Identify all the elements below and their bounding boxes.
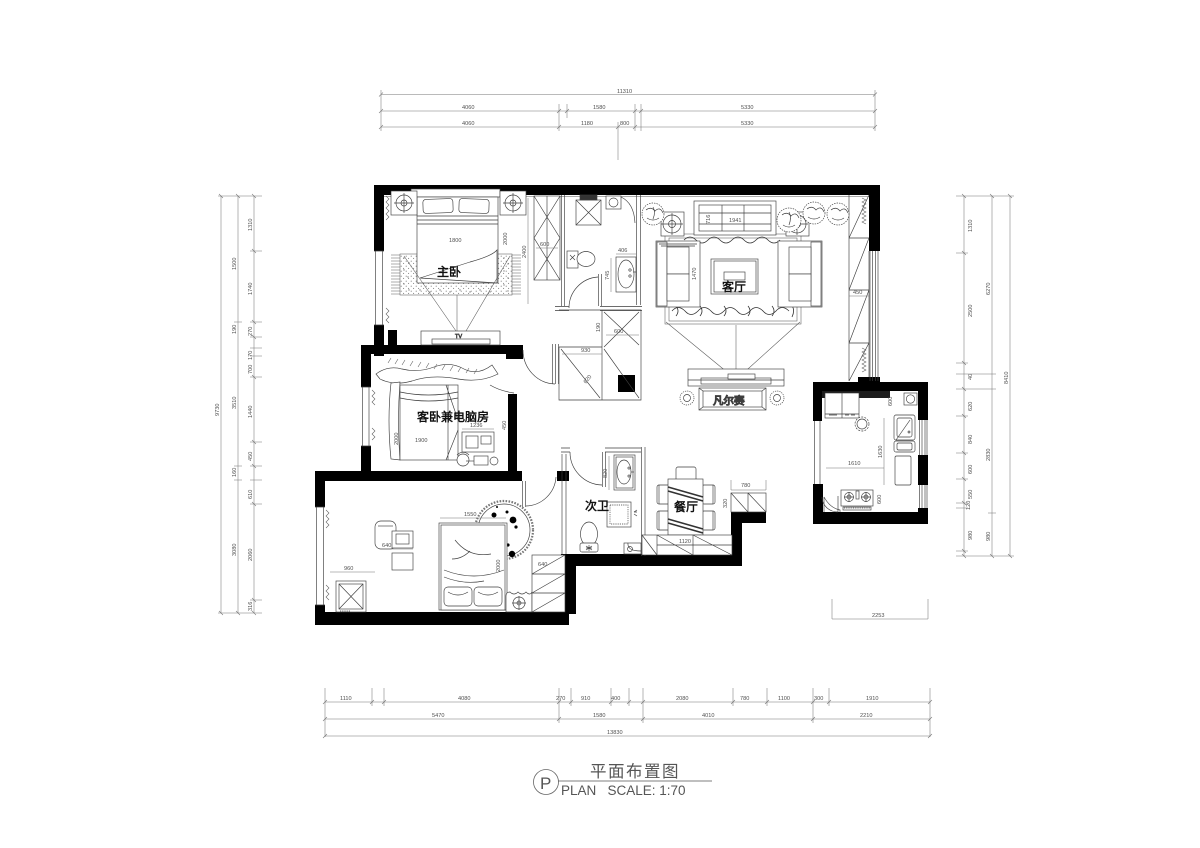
svg-text:1580: 1580 (593, 713, 605, 719)
svg-text:1180: 1180 (581, 121, 593, 127)
svg-text:5330: 5330 (741, 121, 753, 127)
svg-text:1740: 1740 (248, 283, 254, 295)
svg-text:凡尔赛: 凡尔赛 (713, 394, 745, 407)
svg-text:1120: 1120 (679, 539, 691, 545)
svg-text:820: 820 (603, 469, 609, 478)
svg-text:316: 316 (248, 602, 254, 611)
svg-text:2000: 2000 (394, 433, 400, 445)
svg-text:800: 800 (620, 121, 629, 127)
svg-text:P: P (540, 774, 551, 793)
svg-text:2080: 2080 (676, 696, 688, 702)
svg-text:3080: 3080 (232, 544, 238, 556)
svg-text:600: 600 (877, 495, 883, 504)
svg-text:320: 320 (723, 499, 729, 508)
svg-text:640: 640 (538, 562, 547, 568)
svg-text:8410: 8410 (1004, 372, 1010, 384)
svg-text:PLAN SCALE: 1:70: PLAN SCALE: 1:70 (561, 783, 686, 798)
svg-text:40: 40 (968, 374, 974, 380)
svg-text:3510: 3510 (232, 397, 238, 409)
svg-text:600: 600 (968, 465, 974, 474)
svg-text:4060: 4060 (462, 105, 474, 111)
svg-text:600: 600 (614, 329, 623, 335)
svg-text:450: 450 (853, 290, 862, 296)
svg-text:270: 270 (248, 327, 254, 336)
svg-text:170: 170 (248, 351, 254, 360)
svg-text:930: 930 (581, 348, 590, 354)
svg-text:1440: 1440 (248, 406, 254, 418)
svg-text:640: 640 (382, 543, 391, 549)
svg-text:700: 700 (248, 365, 254, 374)
svg-text:2400: 2400 (522, 246, 528, 258)
svg-text:780: 780 (741, 483, 750, 489)
svg-text:190: 190 (596, 323, 602, 332)
svg-text:610: 610 (248, 490, 254, 499)
svg-text:平面布置图: 平面布置图 (590, 762, 680, 781)
svg-text:400: 400 (611, 696, 620, 702)
svg-text:1800: 1800 (449, 238, 461, 244)
svg-text:1610: 1610 (848, 461, 860, 467)
svg-text:1941: 1941 (729, 218, 741, 224)
svg-text:620: 620 (968, 402, 974, 411)
svg-text:550: 550 (968, 490, 974, 499)
svg-text:1550: 1550 (464, 512, 476, 518)
svg-text:2210: 2210 (860, 713, 872, 719)
svg-text:主卧: 主卧 (437, 264, 461, 279)
svg-text:11310: 11310 (617, 89, 632, 95)
svg-text:120: 120 (966, 501, 972, 510)
svg-text:1110: 1110 (340, 696, 352, 702)
svg-text:980: 980 (986, 532, 992, 541)
svg-text:次卫: 次卫 (585, 498, 609, 513)
svg-text:1910: 1910 (866, 696, 878, 702)
svg-text:餐厅: 餐厅 (674, 499, 698, 514)
svg-text:1500: 1500 (232, 258, 238, 270)
svg-text:客厅: 客厅 (721, 279, 746, 294)
svg-text:2253: 2253 (872, 613, 884, 619)
svg-text:4080: 4080 (458, 696, 470, 702)
svg-text:980: 980 (968, 531, 974, 540)
svg-text:300: 300 (814, 696, 823, 702)
svg-text:960: 960 (344, 566, 353, 572)
svg-text:450: 450 (248, 452, 254, 461)
svg-text:160: 160 (232, 468, 238, 477)
svg-text:2500: 2500 (968, 305, 974, 317)
svg-text:1236: 1236 (470, 423, 482, 429)
svg-text:1900: 1900 (415, 438, 427, 444)
svg-text:1630: 1630 (878, 446, 884, 458)
svg-text:13830: 13830 (607, 730, 623, 736)
svg-text:780: 780 (740, 696, 749, 702)
svg-text:450: 450 (502, 421, 508, 430)
svg-text:1310: 1310 (968, 220, 974, 232)
svg-text:1470: 1470 (692, 268, 698, 280)
svg-text:406: 406 (618, 248, 627, 254)
svg-text:840: 840 (968, 435, 974, 444)
svg-text:910: 910 (581, 696, 590, 702)
svg-text:2000: 2000 (503, 233, 509, 245)
svg-text:1580: 1580 (593, 105, 605, 111)
svg-text:6270: 6270 (986, 283, 992, 295)
svg-text:716: 716 (706, 215, 712, 224)
svg-text:1100: 1100 (778, 696, 790, 702)
svg-text:4060: 4060 (462, 121, 474, 127)
svg-text:5470: 5470 (432, 713, 444, 719)
svg-text:TV: TV (455, 334, 462, 340)
svg-text:5330: 5330 (741, 105, 753, 111)
svg-text:4010: 4010 (702, 713, 714, 719)
svg-text:9730: 9730 (215, 404, 221, 416)
svg-text:190: 190 (232, 325, 238, 334)
svg-text:600: 600 (540, 242, 549, 248)
svg-text:2060: 2060 (248, 549, 254, 561)
svg-text:1310: 1310 (248, 219, 254, 231)
svg-text:270: 270 (556, 696, 565, 702)
svg-text:745: 745 (605, 271, 611, 280)
svg-text:600: 600 (888, 397, 894, 406)
svg-text:客卧兼电脑房: 客卧兼电脑房 (416, 409, 489, 424)
svg-text:2000: 2000 (496, 560, 502, 572)
svg-text:2830: 2830 (986, 449, 992, 461)
